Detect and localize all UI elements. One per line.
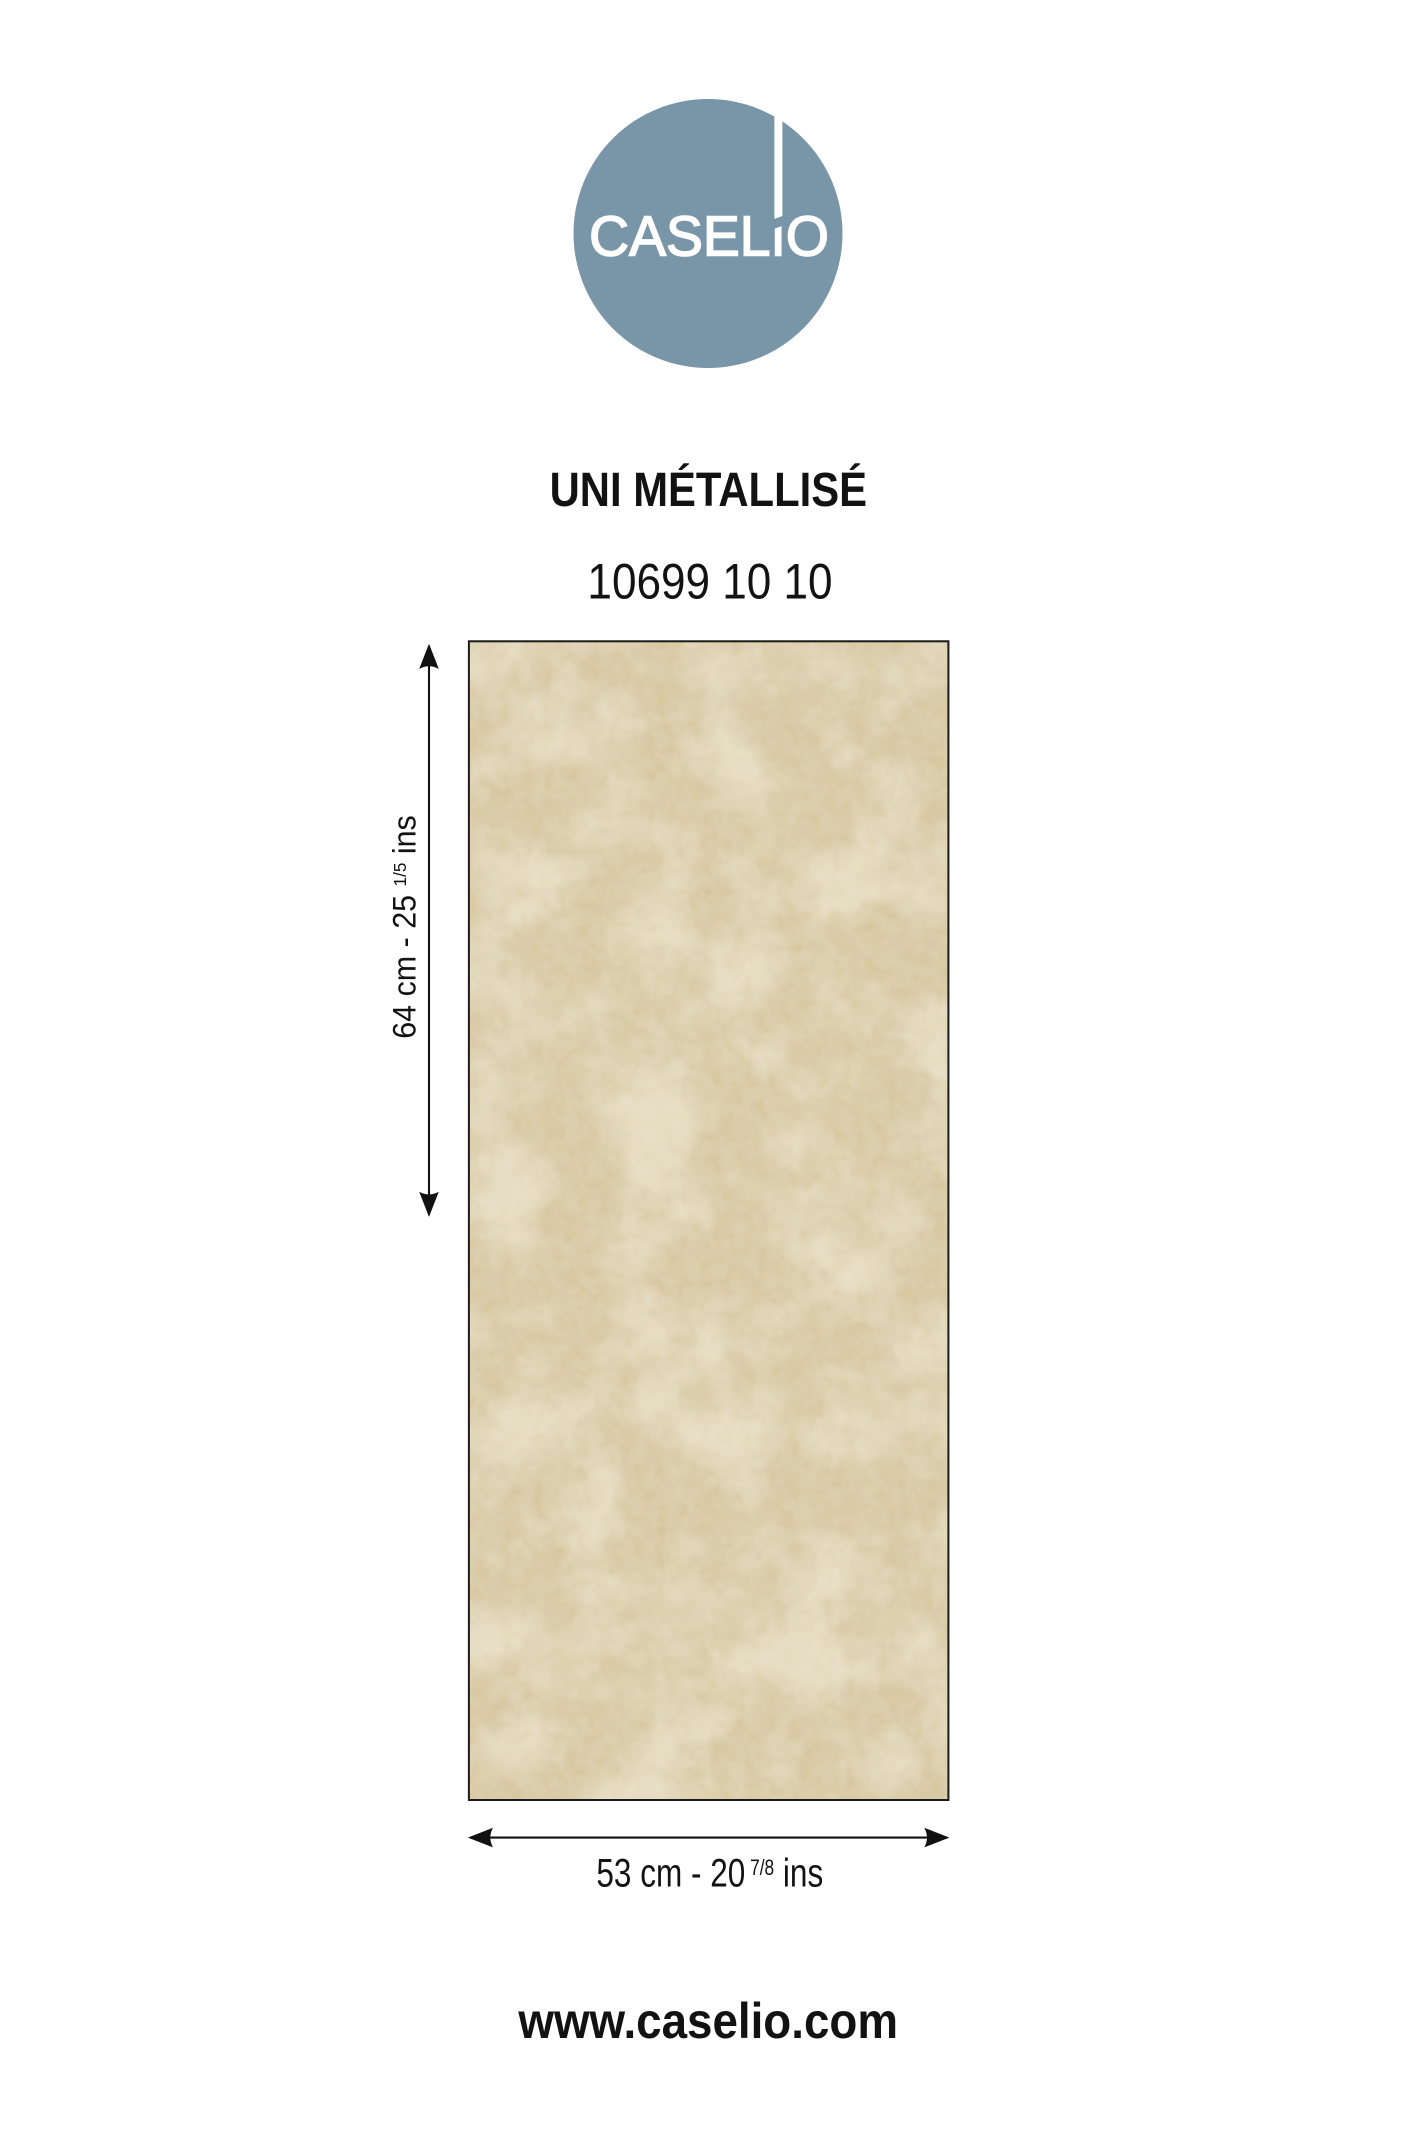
svg-text:www.caselio.com: www.caselio.com (517, 1994, 898, 2049)
svg-text:53 cm - 20 7/8 ins: 53 cm - 20 7/8 ins (596, 1850, 823, 1896)
svg-text:UNI MÉTALLISÉ: UNI MÉTALLISÉ (550, 462, 867, 516)
svg-text:10699 10 10: 10699 10 10 (587, 553, 832, 609)
svg-text:CASELIO: CASELIO (589, 204, 829, 268)
svg-text:64 cm - 25 1/5 ins: 64 cm - 25 1/5 ins (387, 815, 423, 1039)
